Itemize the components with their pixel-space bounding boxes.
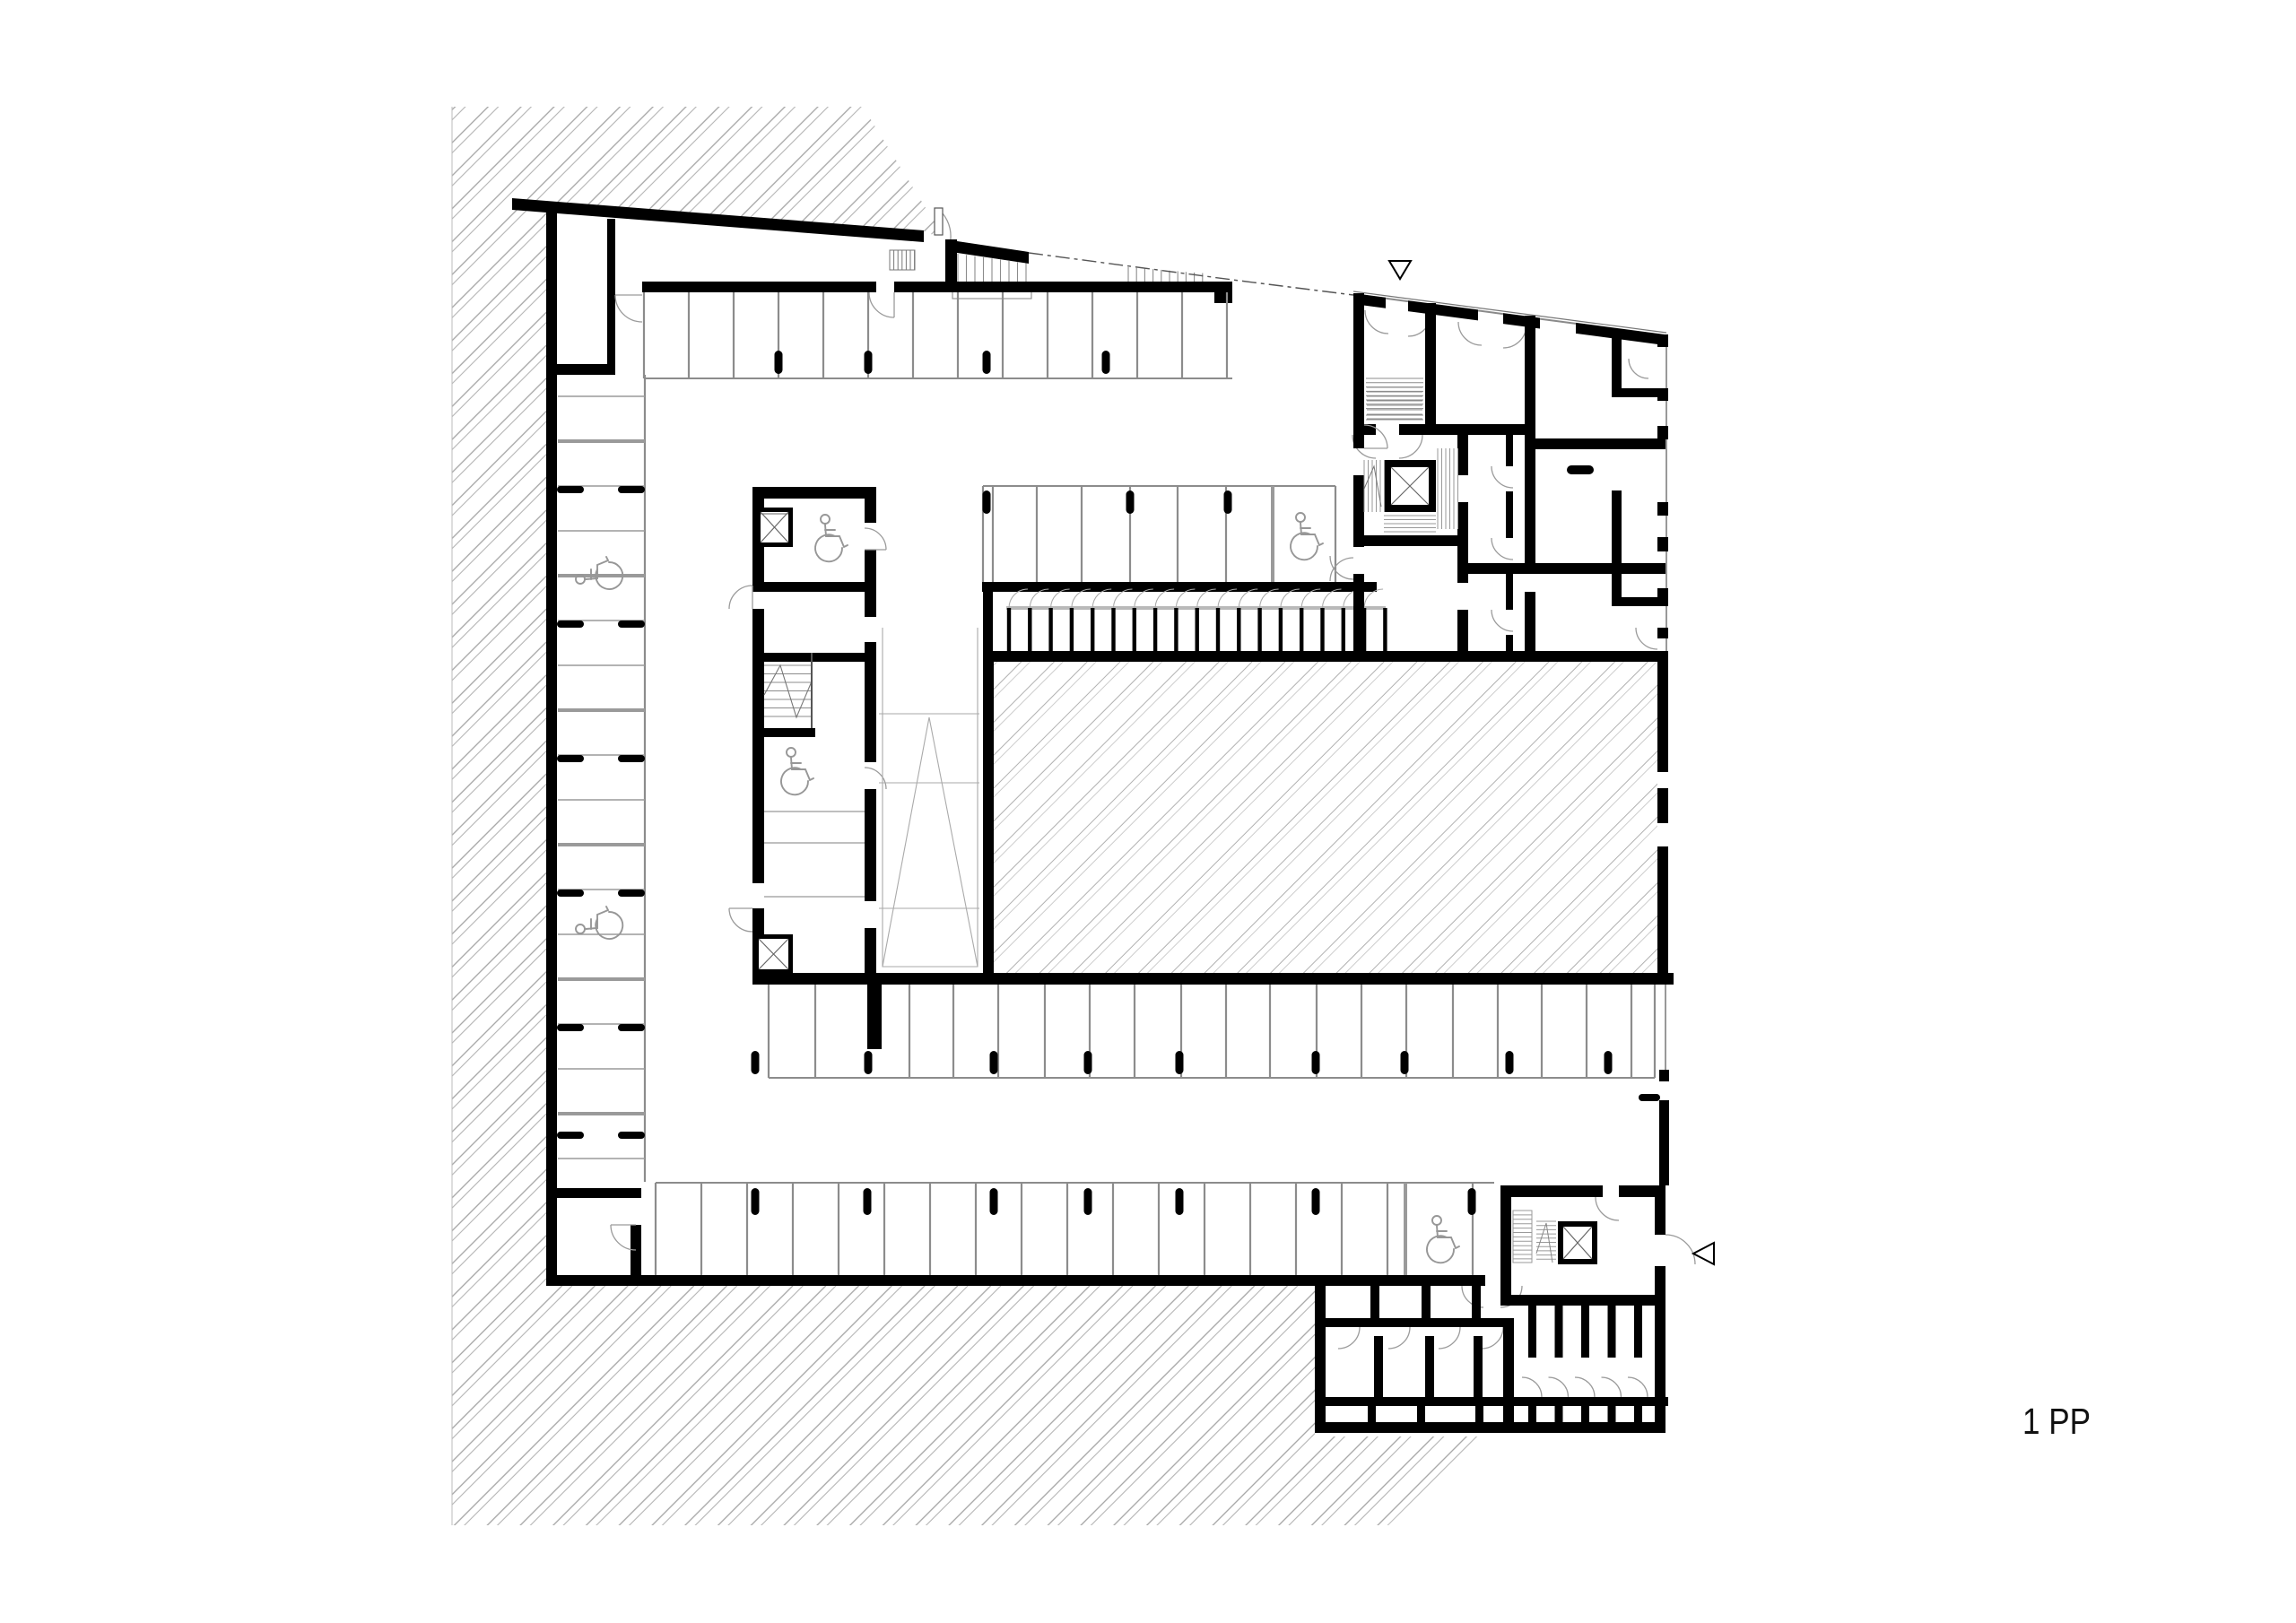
svg-text:1 PP: 1 PP [2022, 1401, 2091, 1442]
